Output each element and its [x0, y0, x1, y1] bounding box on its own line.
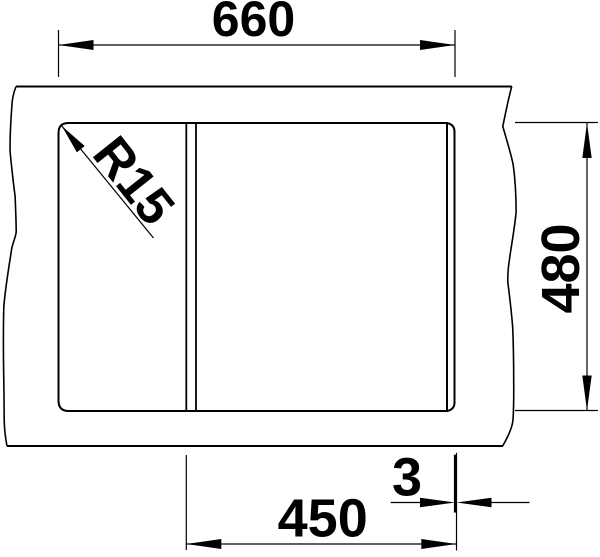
- svg-text:3: 3: [392, 447, 422, 507]
- svg-text:R15: R15: [82, 125, 186, 235]
- svg-text:480: 480: [531, 223, 591, 313]
- svg-text:660: 660: [212, 0, 295, 47]
- svg-text:450: 450: [278, 489, 368, 549]
